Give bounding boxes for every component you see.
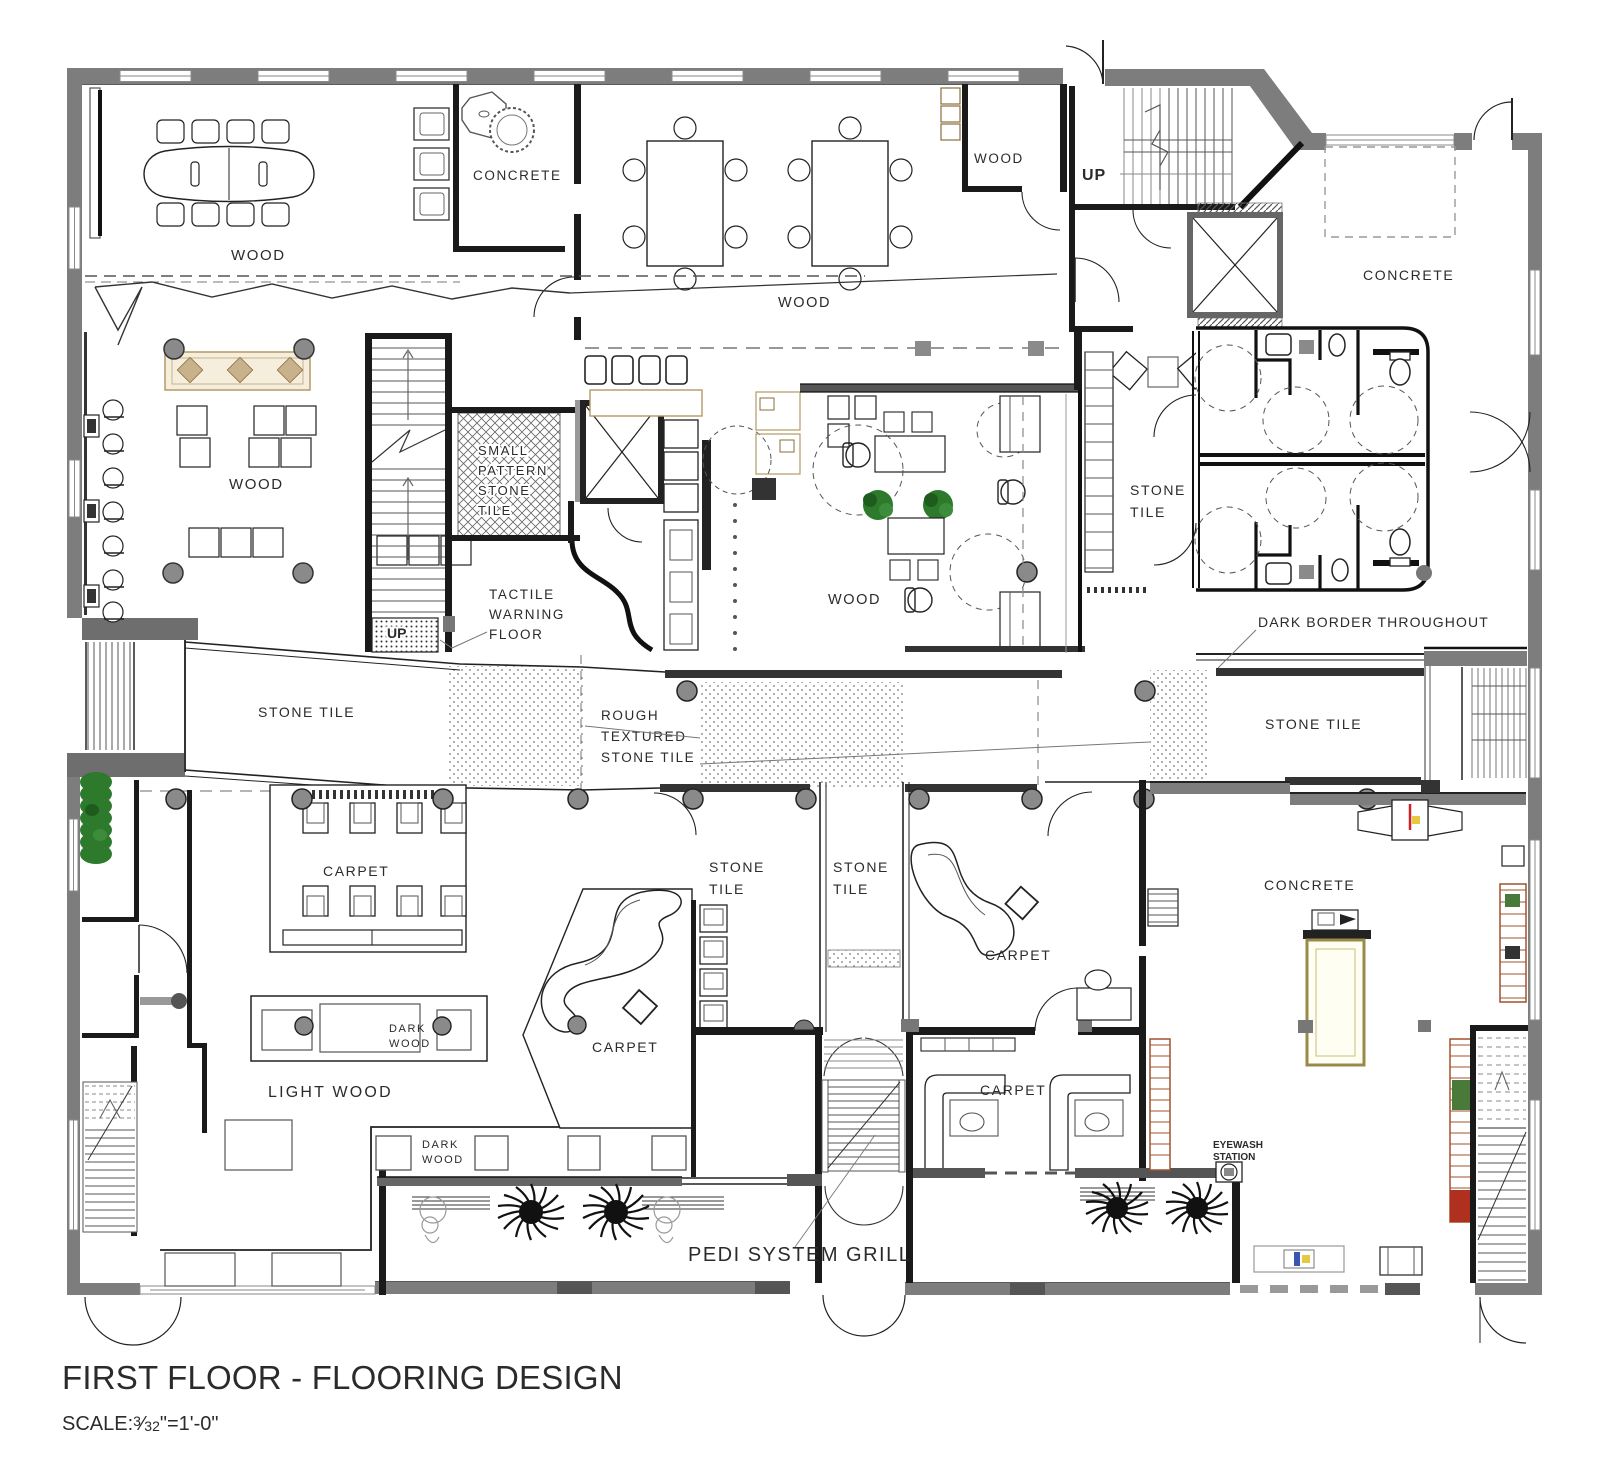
svg-text:CARPET: CARPET — [985, 947, 1051, 963]
svg-text:WARNING: WARNING — [489, 607, 565, 622]
svg-text:STONE TILE: STONE TILE — [258, 704, 355, 720]
svg-text:PEDI SYSTEM GRILL: PEDI SYSTEM GRILL — [688, 1244, 911, 1266]
svg-text:TEXTURED: TEXTURED — [601, 729, 687, 744]
svg-text:STATION: STATION — [1213, 1152, 1255, 1163]
svg-text:DARK BORDER THROUGHOUT: DARK BORDER THROUGHOUT — [1258, 614, 1489, 630]
svg-text:STONE TILE: STONE TILE — [1265, 716, 1362, 732]
svg-text:SMALL: SMALL — [478, 443, 529, 458]
svg-text:CARPET: CARPET — [592, 1039, 658, 1055]
svg-text:CONCRETE: CONCRETE — [1264, 877, 1355, 893]
svg-text:CARPET: CARPET — [323, 863, 389, 879]
svg-text:WOOD: WOOD — [974, 151, 1024, 166]
svg-text:CARPET: CARPET — [980, 1082, 1046, 1098]
svg-text:FLOOR: FLOOR — [489, 627, 544, 642]
svg-text:LIGHT WOOD: LIGHT WOOD — [268, 1084, 393, 1101]
svg-text:WOOD: WOOD — [229, 476, 284, 493]
svg-text:WOOD: WOOD — [389, 1038, 431, 1050]
svg-text:TACTILE: TACTILE — [489, 587, 555, 602]
svg-text:WOOD: WOOD — [778, 295, 831, 311]
svg-text:STONE: STONE — [478, 483, 531, 498]
svg-text:STONE: STONE — [709, 859, 765, 875]
svg-text:ROUGH: ROUGH — [601, 708, 659, 723]
svg-text:TILE: TILE — [833, 881, 869, 897]
svg-text:TILE: TILE — [709, 881, 745, 897]
svg-text:STONE: STONE — [1130, 482, 1186, 498]
svg-text:SCALE:3⁄32"=1'-0": SCALE:3⁄32"=1'-0" — [62, 1413, 218, 1435]
svg-text:STONE TILE: STONE TILE — [601, 750, 695, 765]
svg-text:TILE: TILE — [478, 503, 512, 518]
svg-text:DARK: DARK — [389, 1023, 426, 1035]
svg-text:CONCRETE: CONCRETE — [1363, 267, 1454, 283]
svg-text:DARK: DARK — [422, 1139, 459, 1151]
svg-text:UP: UP — [387, 625, 406, 641]
svg-text:STONE: STONE — [833, 859, 889, 875]
svg-text:FIRST FLOOR - FLOORING DESIGN: FIRST FLOOR - FLOORING DESIGN — [62, 1359, 623, 1396]
svg-text:EYEWASH: EYEWASH — [1213, 1140, 1263, 1151]
svg-text:PATTERN: PATTERN — [478, 463, 548, 478]
svg-text:WOOD: WOOD — [828, 592, 881, 608]
svg-text:UP: UP — [1082, 167, 1106, 184]
svg-text:CONCRETE: CONCRETE — [473, 168, 562, 183]
svg-text:WOOD: WOOD — [231, 247, 286, 264]
svg-text:WOOD: WOOD — [422, 1154, 464, 1166]
svg-text:TILE: TILE — [1130, 504, 1166, 520]
